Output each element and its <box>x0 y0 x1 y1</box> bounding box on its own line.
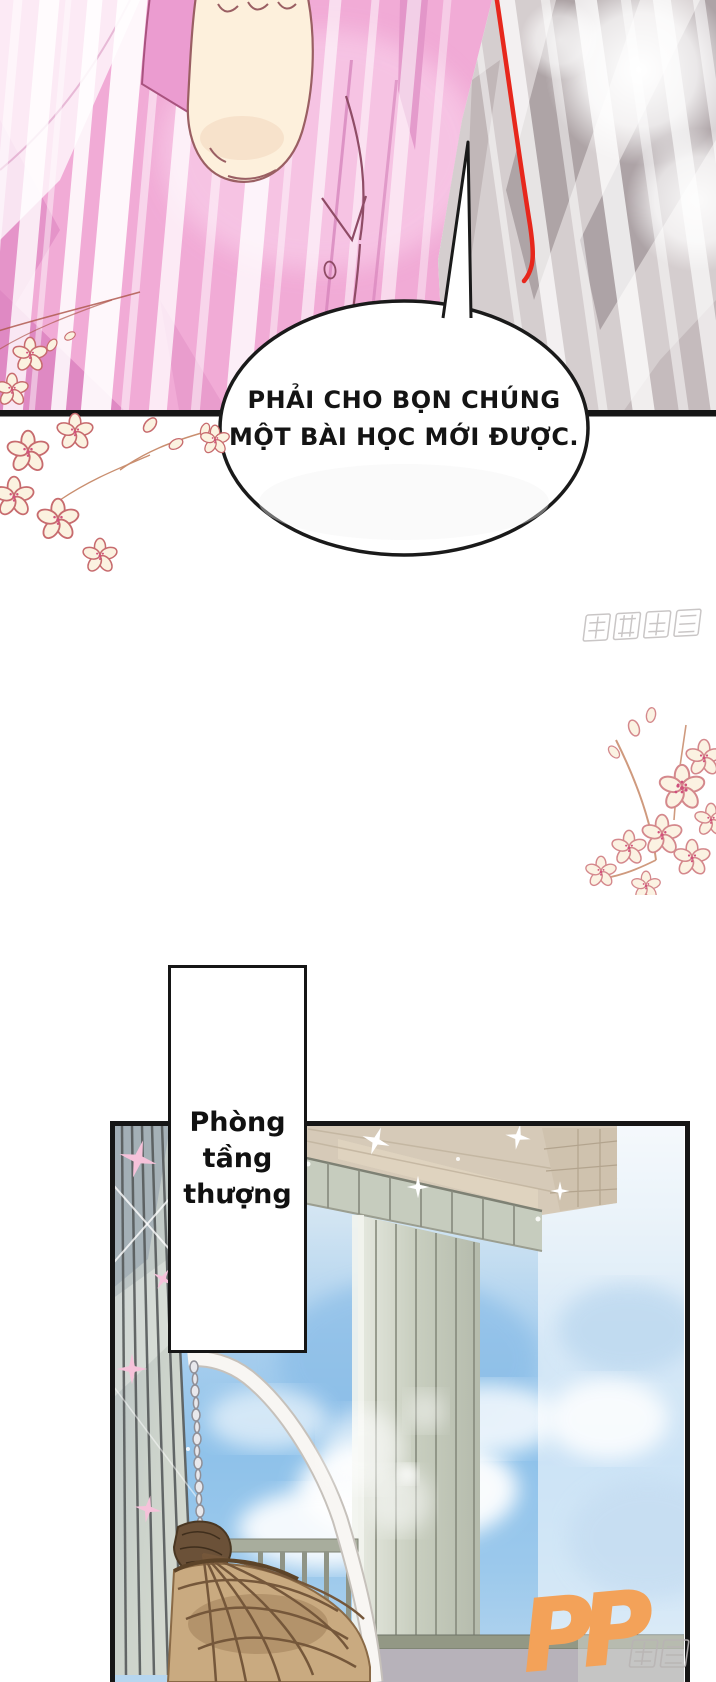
tencent-watermark: 腾讯动漫 <box>583 604 707 652</box>
caption-line-2: tầng <box>203 1141 273 1177</box>
caption-line-3: thượng <box>183 1177 291 1213</box>
speech-line-2: MỘT BÀI HỌC MỚI ĐƯỢC. <box>214 419 594 456</box>
top-panel-art <box>0 0 716 600</box>
tencent-watermark-glyphs <box>580 601 710 651</box>
speech-bubble-text: PHẢI CHO BỌN CHÚNG MỘT BÀI HỌC MỚI ĐƯỢC. <box>214 382 594 456</box>
caption-line-1: Phòng <box>189 1105 285 1141</box>
location-caption-box: Phòng tầng thượng <box>168 965 307 1353</box>
publisher-logo: PP <box>518 1579 646 1682</box>
comic-page: PHẢI CHO BỌN CHÚNG MỘT BÀI HỌC MỚI ĐƯỢC.… <box>0 0 716 1682</box>
speech-line-1: PHẢI CHO BỌN CHÚNG <box>214 382 594 419</box>
flowers-right <box>556 700 716 895</box>
